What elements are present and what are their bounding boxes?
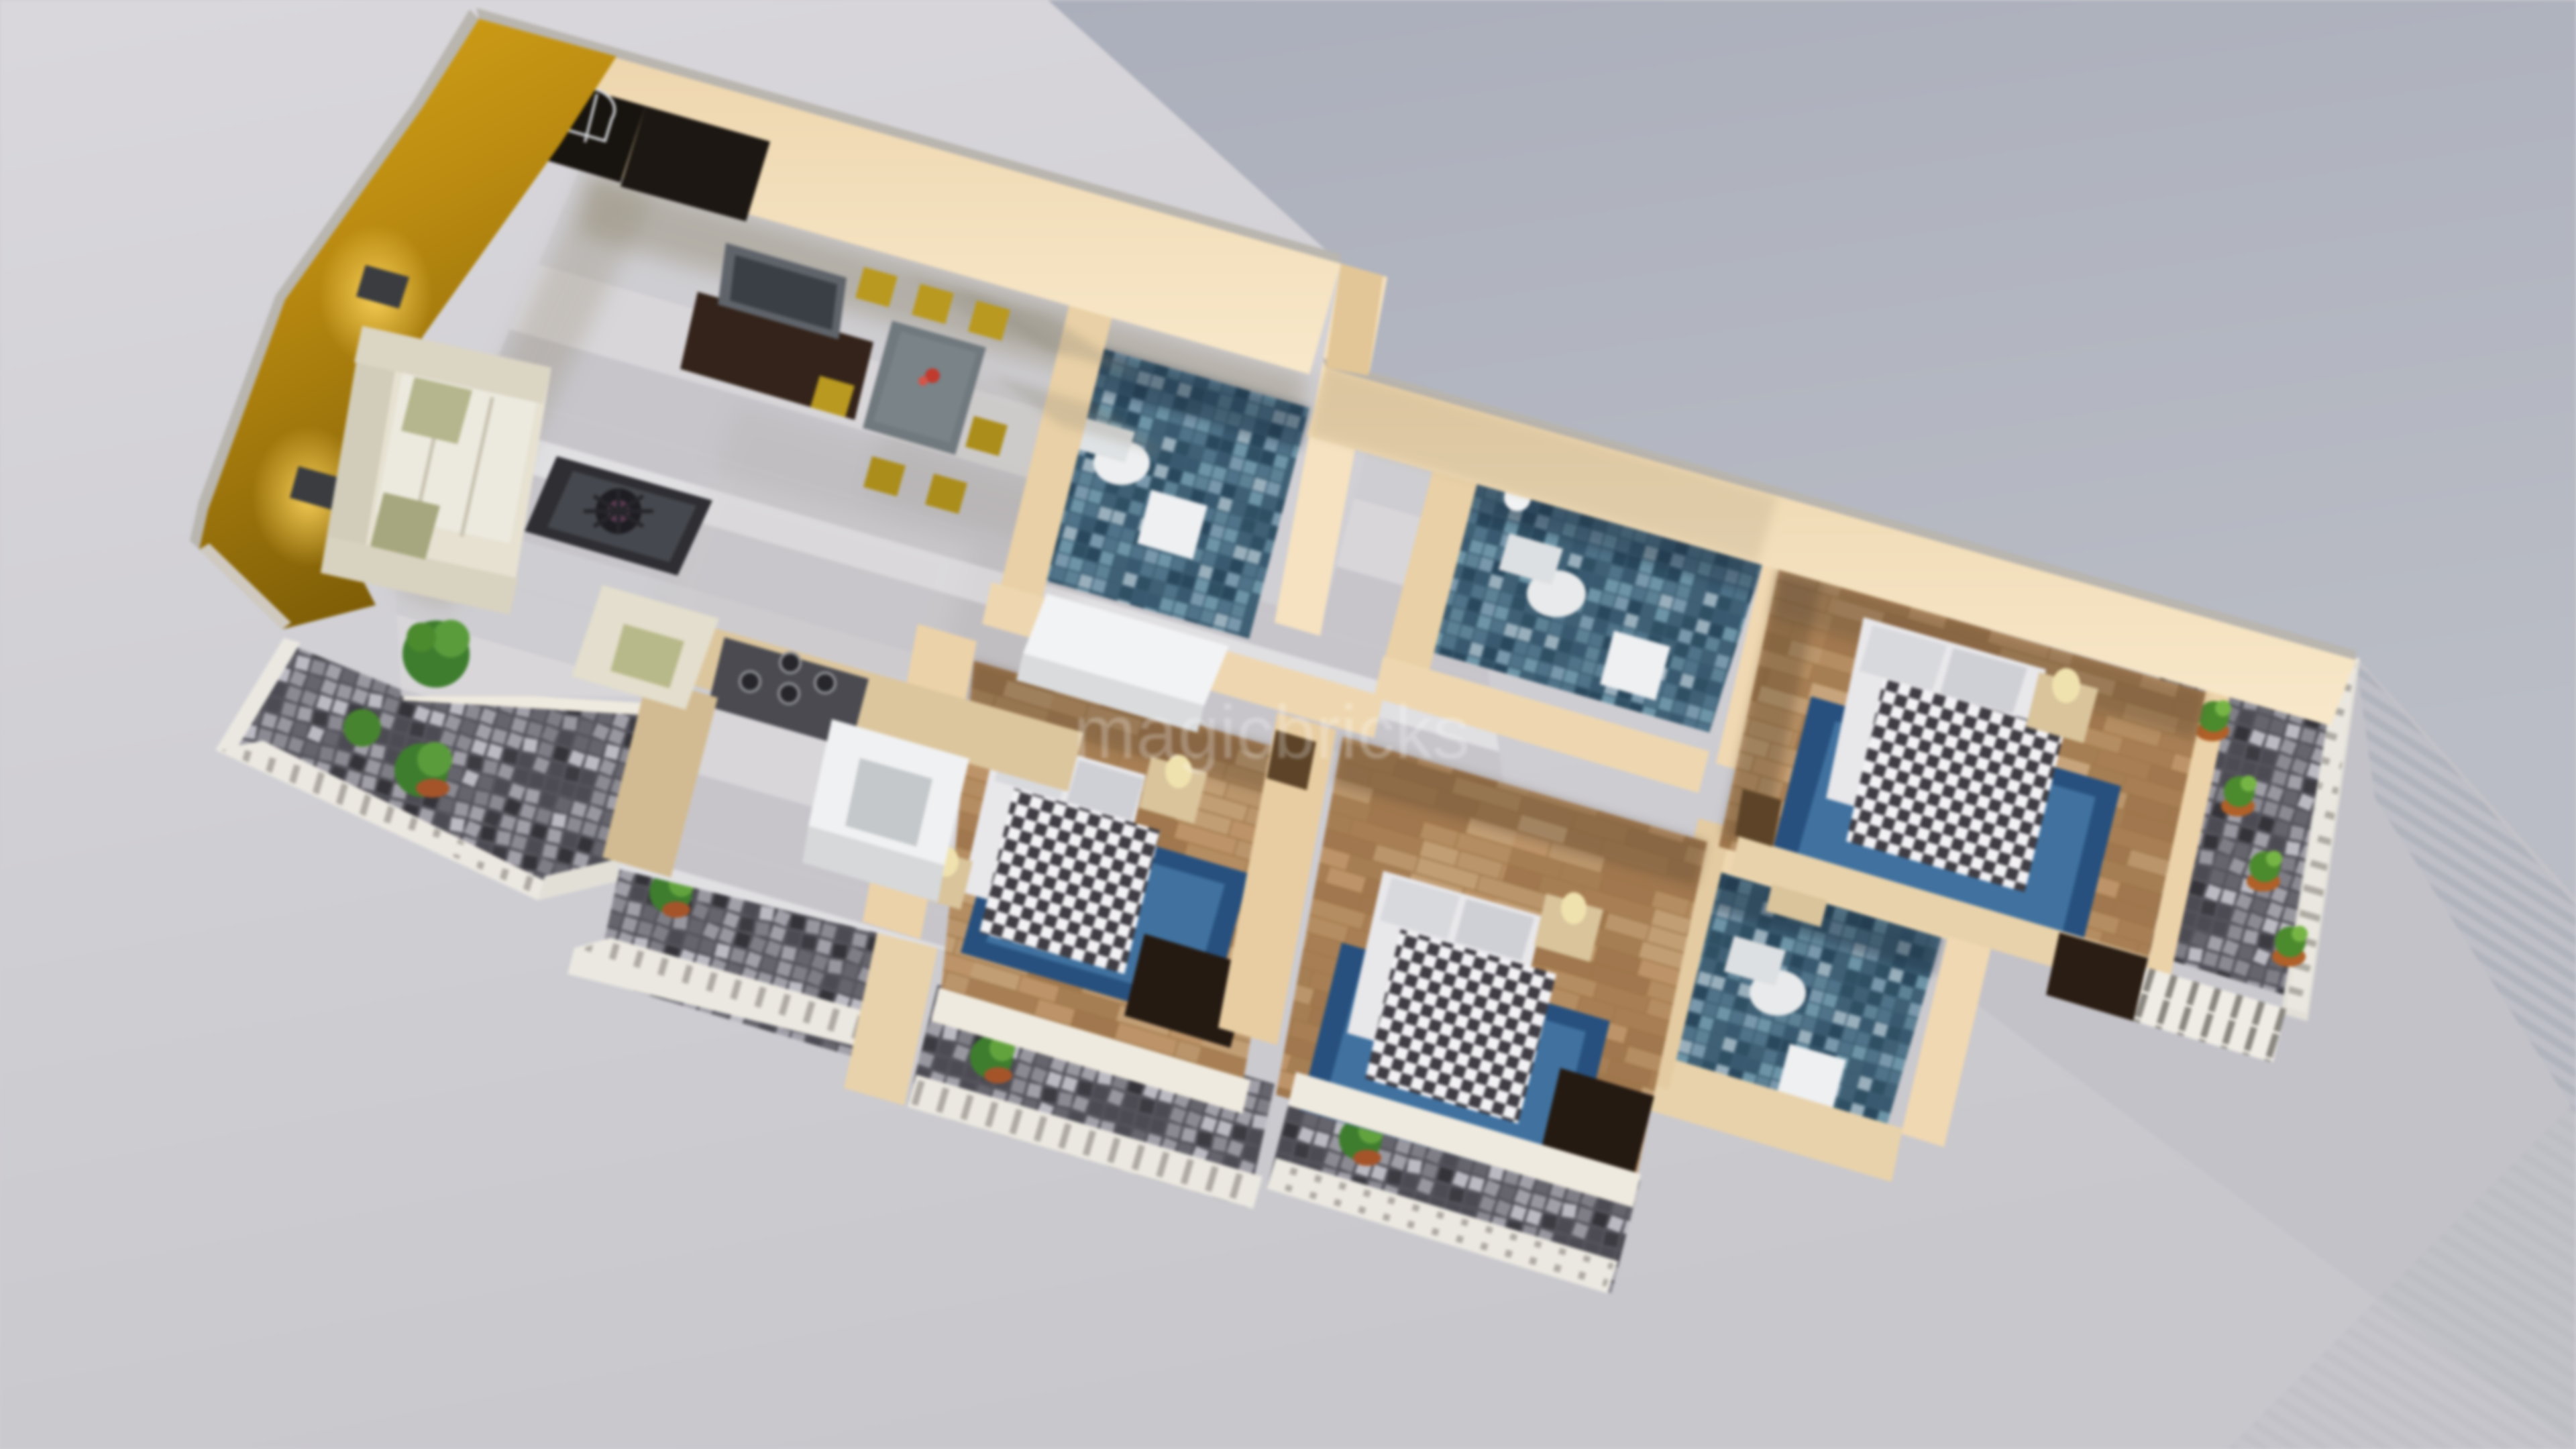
svg-text:magicbricks: magicbricks bbox=[1073, 690, 1470, 774]
